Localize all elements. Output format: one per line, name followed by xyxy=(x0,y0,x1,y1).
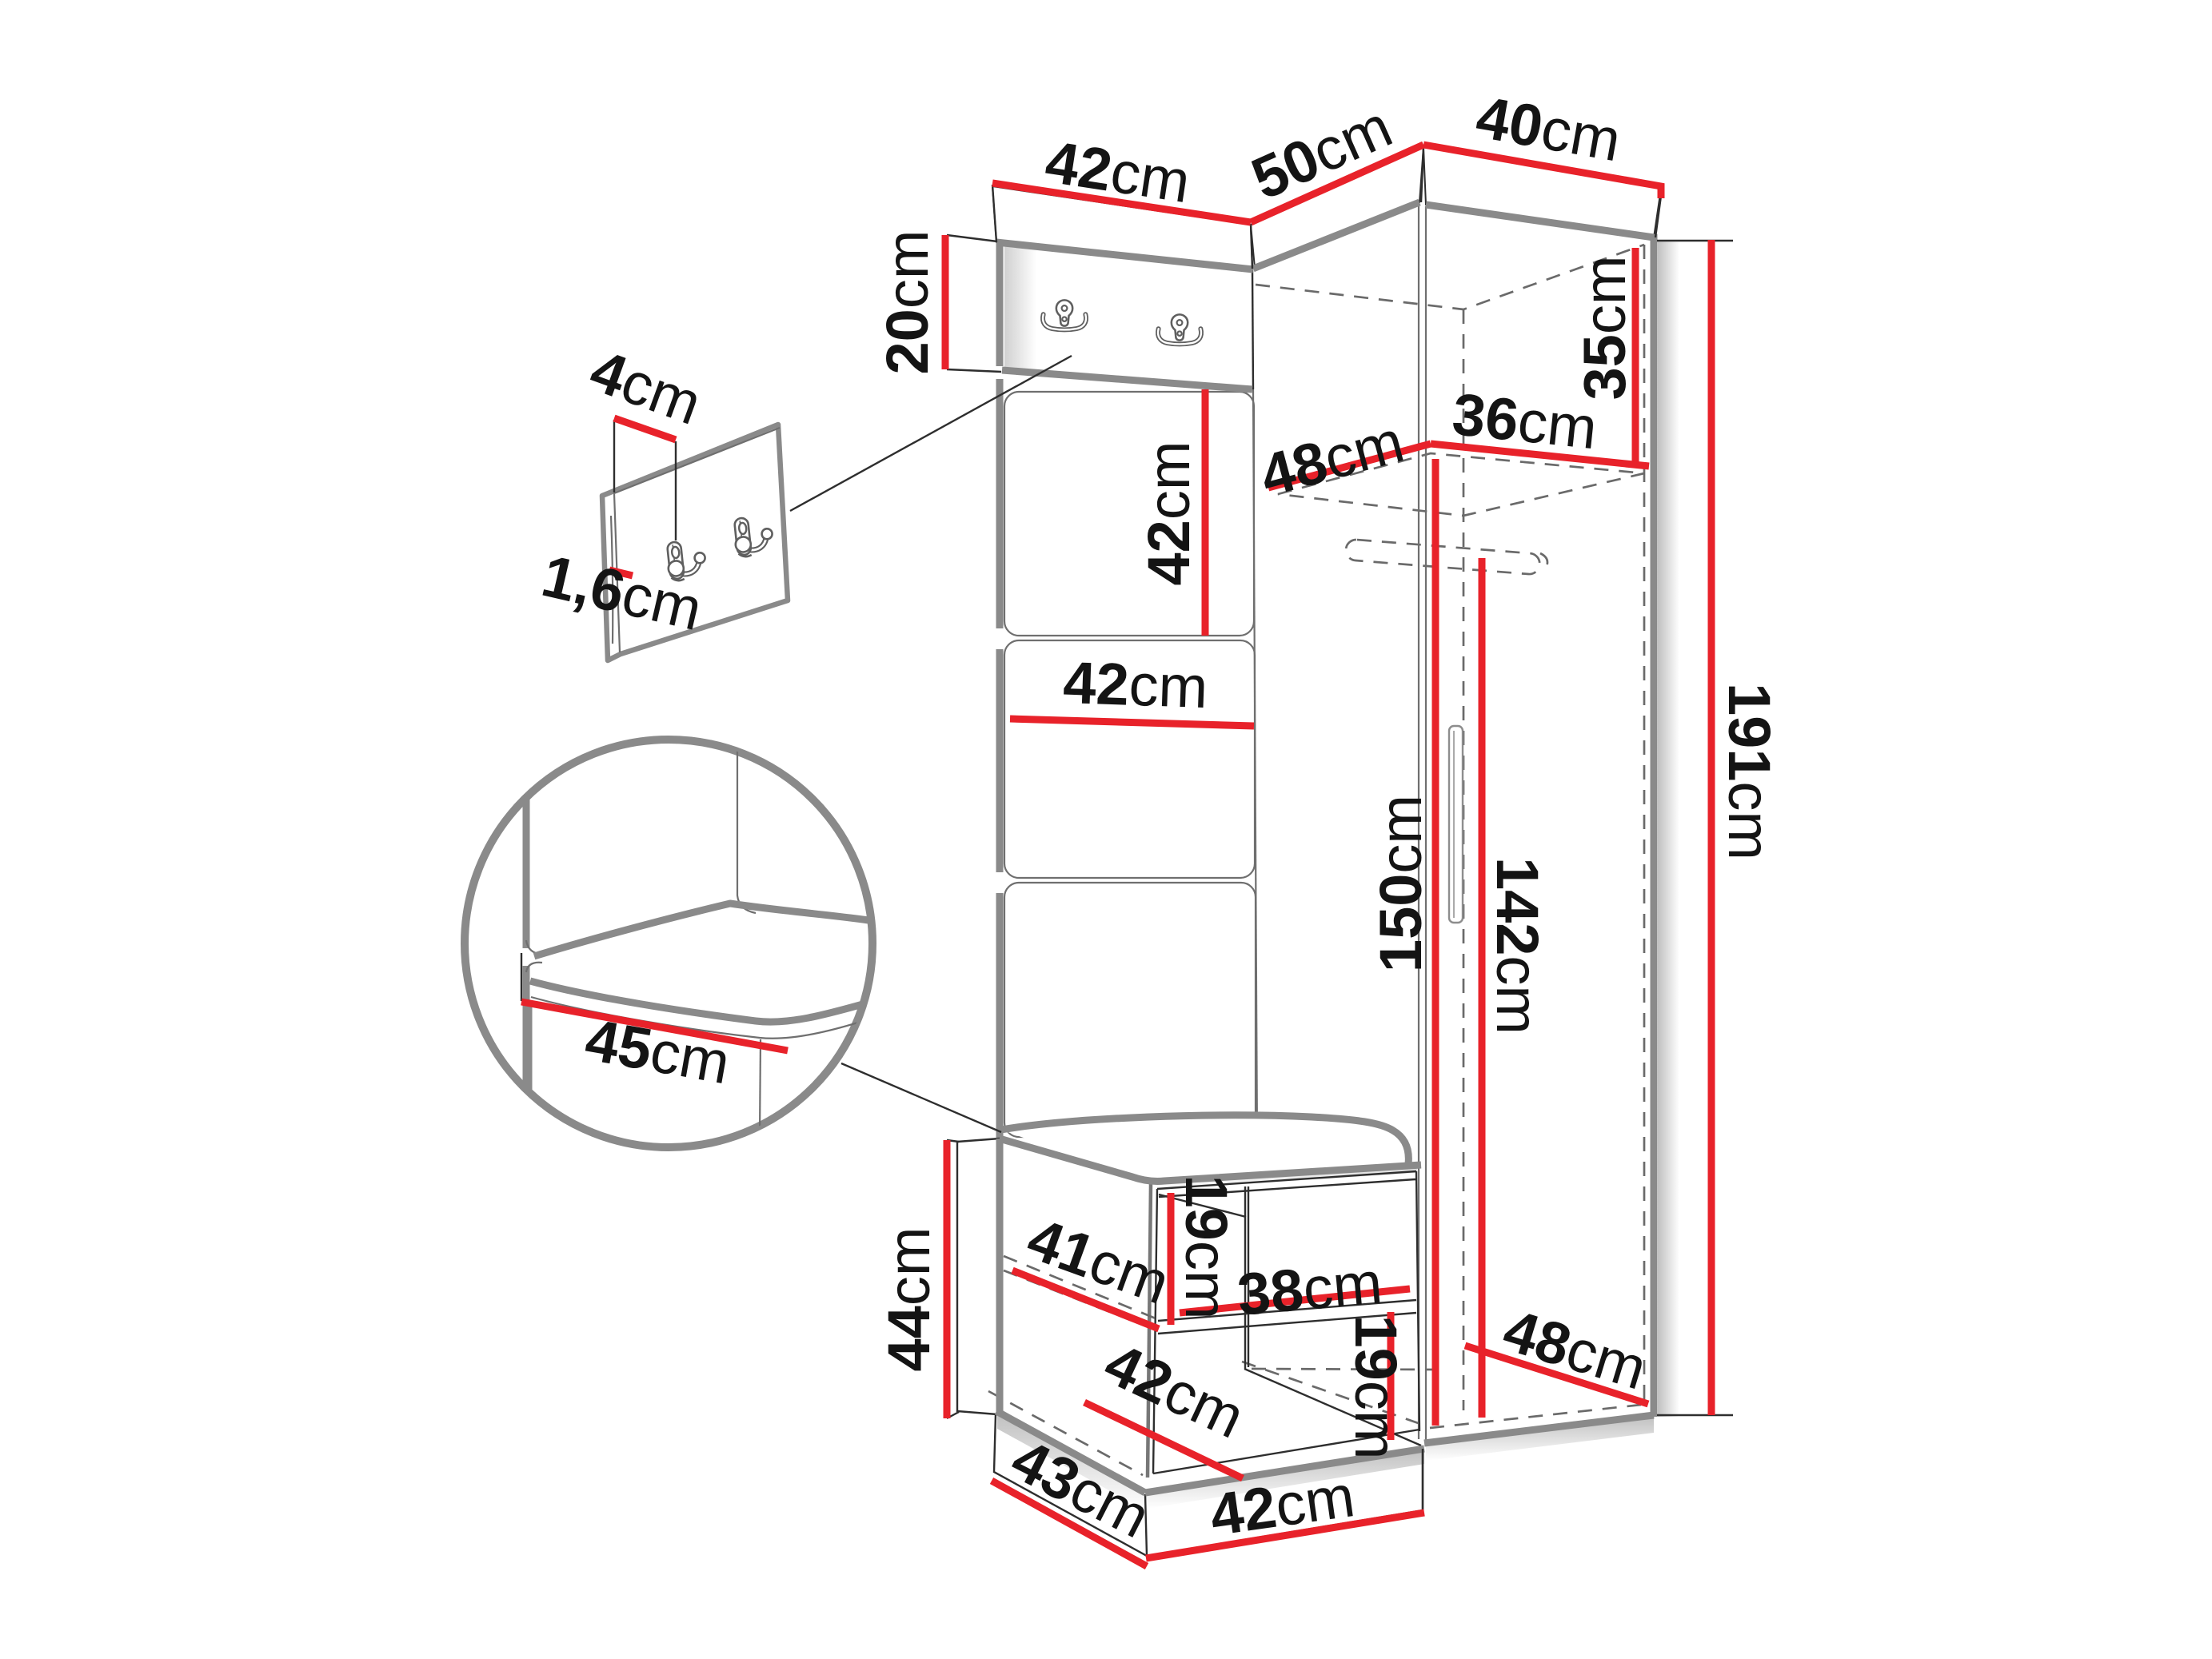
svg-text:42cm: 42cm xyxy=(1136,441,1202,586)
svg-text:150cm: 150cm xyxy=(1368,795,1434,972)
svg-text:35cm: 35cm xyxy=(1571,256,1638,401)
svg-text:19cm: 19cm xyxy=(1343,1315,1409,1460)
svg-text:20cm: 20cm xyxy=(874,230,940,375)
svg-text:19cm: 19cm xyxy=(1173,1175,1240,1320)
svg-text:142cm: 142cm xyxy=(1484,857,1551,1035)
svg-text:191cm: 191cm xyxy=(1716,683,1783,860)
svg-text:44cm: 44cm xyxy=(876,1227,942,1372)
svg-text:42cm: 42cm xyxy=(1062,649,1209,720)
